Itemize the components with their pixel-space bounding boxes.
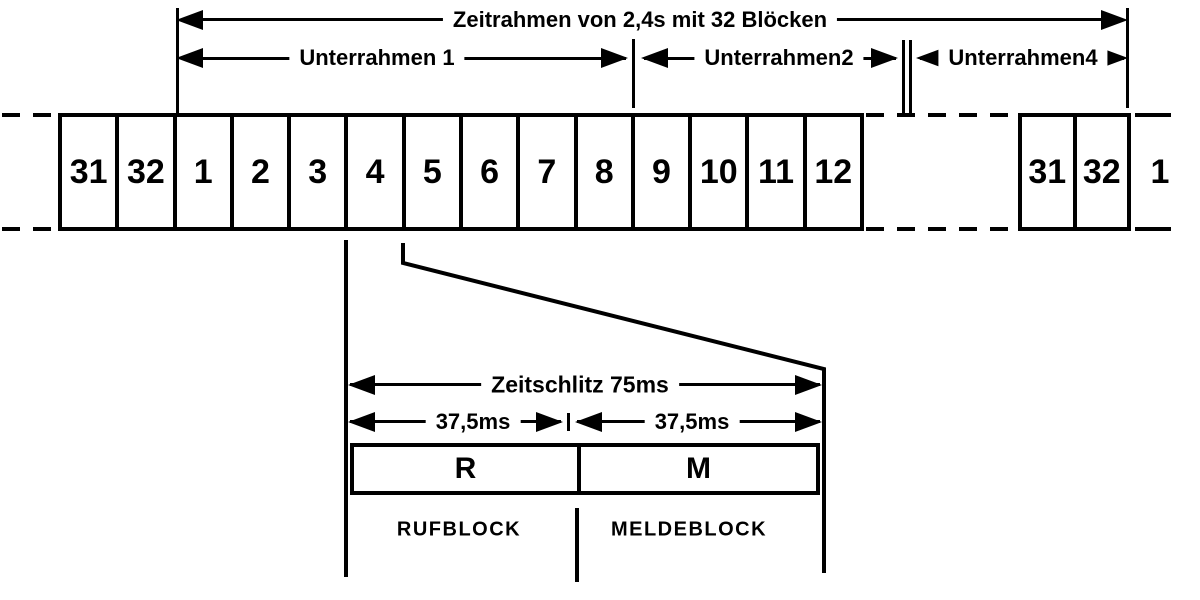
rufblock-caption: RUFBLOCK	[397, 519, 521, 542]
meldeblock-caption: MELDEBLOCK	[611, 519, 767, 542]
row-dashes-right-bottom	[1153, 227, 1183, 231]
half-left-arrowhead-left-icon	[348, 412, 375, 432]
unterrahmen2-label: Unterrahmen2	[694, 46, 863, 70]
break-bar-right	[909, 40, 912, 113]
block-cell: 10	[688, 117, 745, 227]
block-cell: 5	[402, 117, 459, 227]
block-cell: 6	[459, 117, 516, 227]
unterrahmen4-label: Unterrahmen4	[938, 46, 1107, 70]
next-frame-block-row: 31 32	[1018, 113, 1131, 231]
zeitrahmen-label: Zeitrahmen von 2,4s mit 32 Blöcken	[443, 8, 837, 32]
half-left-label: 37,5ms	[426, 410, 521, 434]
block-cell: 9	[631, 117, 688, 227]
block-cell: 1	[173, 117, 230, 227]
block-cell: 7	[516, 117, 573, 227]
tdma-timing-diagram: Zeitrahmen von 2,4s mit 32 Blöcken Unter…	[0, 0, 1200, 600]
row-dashes-mid-top	[866, 113, 1016, 117]
block-cell: 4	[344, 117, 401, 227]
timeslot-box: R M	[350, 443, 820, 495]
zeitschlitz-label: Zeitschlitz 75ms	[481, 372, 679, 397]
block-cell: 3	[287, 117, 344, 227]
block-cell: 12	[803, 117, 860, 227]
row-dashes-mid-bottom	[866, 227, 1016, 231]
row-dashes-left-bottom	[2, 227, 54, 231]
unterrahmen1-label: Unterrahmen 1	[289, 46, 464, 70]
unterrahmen2-arrowhead-right-icon	[871, 48, 898, 68]
main-block-row: 31 32 1 2 3 4 5 6 7 8 9 10 11 12	[58, 113, 864, 231]
half-divider-tick	[567, 413, 570, 431]
rufblock-cell: R	[354, 447, 577, 491]
break-bar-left	[902, 40, 905, 113]
overflow-block-number: 1	[1138, 117, 1182, 227]
block-cell: 31	[62, 117, 115, 227]
zeitschlitz-arrowhead-left-icon	[348, 375, 375, 395]
half-right-arrowhead-right-icon	[795, 412, 822, 432]
meldeblock-cell: M	[577, 447, 816, 491]
half-left-arrowhead-right-icon	[536, 412, 563, 432]
subframe1-end-tick	[632, 39, 635, 108]
row-dashes-left-top	[2, 113, 54, 117]
zeitrahmen-arrowhead-right-icon	[1101, 10, 1128, 30]
block-cell: 32	[115, 117, 172, 227]
block-cell: 2	[230, 117, 287, 227]
zeitschlitz-arrowhead-right-icon	[795, 375, 822, 395]
block-cell: 32	[1073, 117, 1128, 227]
block-cell: 11	[745, 117, 802, 227]
block-cell: 31	[1022, 117, 1073, 227]
zeitrahmen-arrowhead-left-icon	[176, 10, 203, 30]
half-right-label: 37,5ms	[645, 410, 740, 434]
block-cell: 8	[574, 117, 631, 227]
unterrahmen1-arrowhead-right-icon	[601, 48, 628, 68]
unterrahmen2-arrowhead-left-icon	[641, 48, 668, 68]
callout-lines	[0, 0, 1200, 600]
unterrahmen1-arrowhead-left-icon	[176, 48, 203, 68]
half-right-arrowhead-left-icon	[575, 412, 602, 432]
